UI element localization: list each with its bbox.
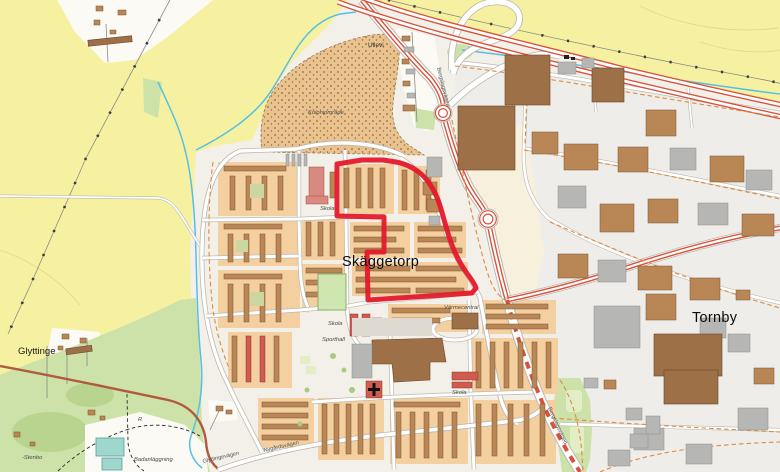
map-container: Skäggetorp Tornby Glyttinge Ullevi Kolon… xyxy=(0,0,780,472)
label-sporthall: Sporthall xyxy=(322,337,346,343)
label-skola-mid: Skola xyxy=(328,321,343,327)
map-canvas[interactable]: Skäggetorp Tornby Glyttinge Ullevi Kolon… xyxy=(0,0,780,472)
label-ullevi: Ullevi xyxy=(368,42,384,49)
roundabout xyxy=(434,104,452,122)
label-badanlaggning: Badanläggning xyxy=(134,457,173,463)
roundabout xyxy=(478,209,498,229)
label-tornby: Tornby xyxy=(692,310,738,326)
label-koloniomrade: Koloniområde xyxy=(308,109,345,116)
label-glyttinge: Glyttinge xyxy=(18,346,56,357)
church-icon xyxy=(366,381,382,398)
label-skola-south: Skola xyxy=(452,390,467,396)
label-skaggetorp: Skäggetorp xyxy=(342,254,419,270)
label-varmecentral: Värmecentral xyxy=(444,305,479,311)
label-skola-north: Skola xyxy=(320,206,335,212)
label-stenbo: -Stenbo xyxy=(22,455,43,461)
